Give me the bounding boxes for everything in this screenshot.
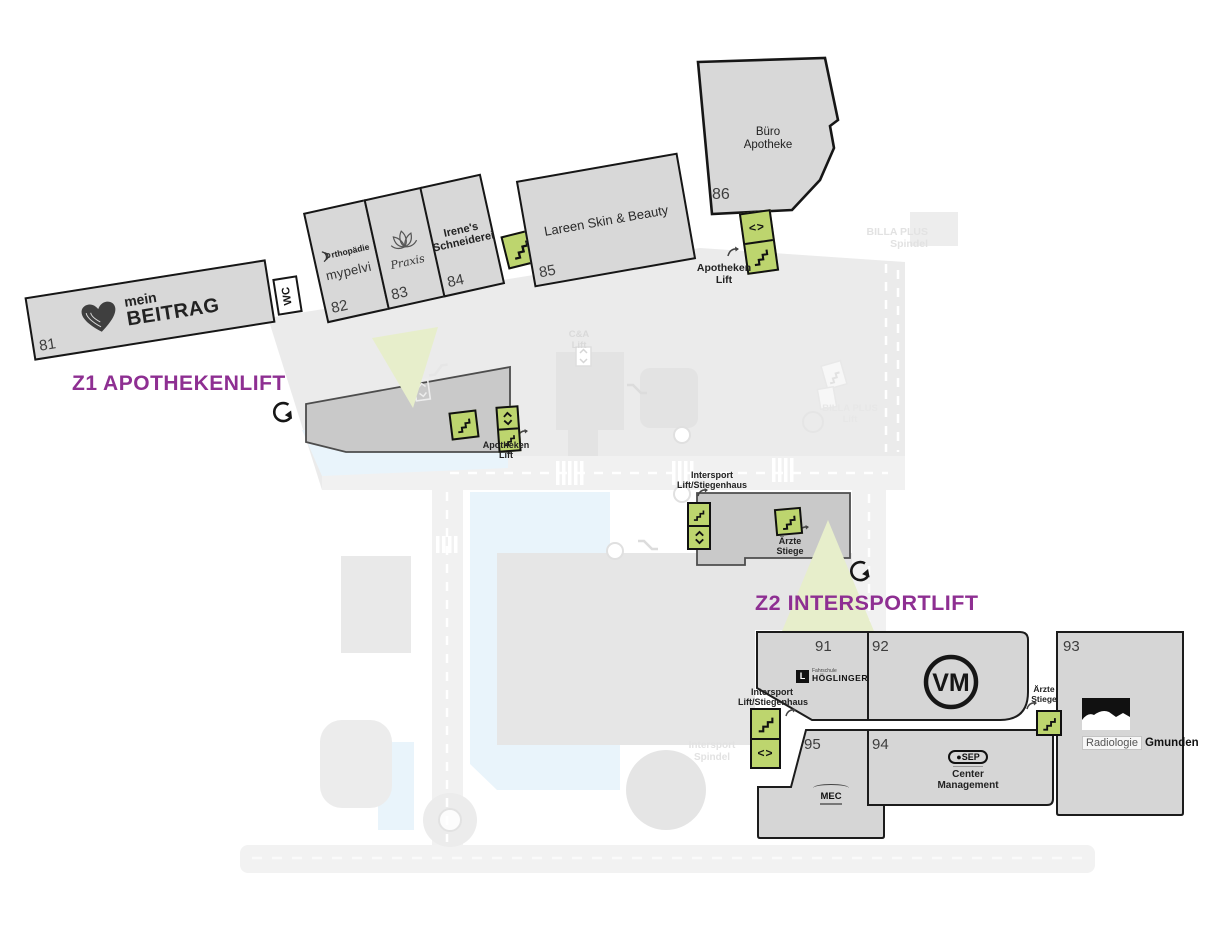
apotheken-lift-mid-label: Apotheken Lift	[478, 440, 534, 461]
label-line: Lift	[694, 274, 754, 286]
unit-number: 92	[872, 638, 889, 655]
aerzte-stiege-right-label: Ärzte Stiege	[1024, 685, 1064, 705]
aerzte-stiege-mid-icon	[774, 507, 803, 536]
label-line: Center	[937, 769, 998, 781]
label-line: Intersport	[682, 740, 742, 752]
label-line: BILLA PLUS	[852, 226, 928, 238]
label-line: Management	[937, 780, 998, 792]
label-line: Lift/Stiegenhaus	[674, 480, 750, 490]
intersport-bottom-lift-icon: <>	[750, 708, 781, 769]
shop-name: Büro	[736, 126, 800, 139]
z2-title: Z2 INTERSPORTLIFT	[755, 591, 979, 616]
stairs-icon	[448, 409, 479, 440]
vm-monogram: VM	[932, 669, 970, 697]
label-line: Intersport	[674, 470, 750, 480]
mec-rule	[820, 803, 842, 805]
hoeglinger-logo: L Fahrschule HÖGLINGER	[796, 669, 868, 683]
mec-logo: MEC	[806, 784, 856, 805]
sep-logo-rule	[953, 766, 983, 768]
label-line: Spindel	[682, 752, 742, 764]
brand-text: rthopädie	[330, 241, 370, 259]
unit-number: 91	[815, 638, 832, 655]
label-line: Apotheken	[694, 262, 754, 274]
billa-plus-lift-label: BILLA PLUS Lift	[822, 404, 878, 426]
brand-text: SEP	[962, 752, 980, 762]
vm-logo: VM	[922, 653, 980, 711]
brand-text: HÖGLINGER	[812, 674, 868, 683]
road-bottom	[240, 845, 1095, 873]
mall-floorplan-map: { "titles": { "z1": "Z1 APOTHEKENLIFT", …	[0, 0, 1210, 929]
shop-name: Lareen Skin & Beauty	[543, 202, 669, 239]
unit-number: 83	[390, 283, 410, 303]
aerzte-stiege-mid-label: Ärzte Stiege	[766, 536, 814, 557]
meinbeitrag-heart-icon	[79, 299, 120, 336]
intersport-lift-mid-label: Intersport Lift/Stiegenhaus	[674, 470, 750, 491]
map-base-layer	[0, 0, 1210, 929]
label-line: Apotheken	[478, 440, 534, 450]
lotus-icon	[386, 226, 420, 256]
mountain-icon	[1082, 698, 1130, 730]
escalator-icon	[638, 541, 658, 549]
label-line: Lift	[822, 415, 878, 426]
unit-number: 84	[446, 271, 466, 291]
unit-number: 86	[712, 186, 730, 204]
label-line: Stiege	[1024, 695, 1064, 705]
unit-number: 81	[38, 335, 57, 354]
sep-center-management: ●SEP Center Management	[938, 750, 998, 792]
brand-text: MEC	[820, 792, 841, 802]
lift-icon	[689, 525, 709, 548]
ca-lift-label: C&A Lift	[560, 330, 598, 352]
driving-school-l-icon: L	[796, 670, 809, 683]
brand-text: Gmunden	[1145, 737, 1199, 749]
label-line: Lift/Stiegenhaus	[738, 697, 806, 707]
brand-text: mypelvi	[324, 258, 372, 283]
unit-number: 82	[330, 297, 350, 317]
billa-plus-spindel-label: BILLA PLUS Spindel	[852, 226, 928, 250]
left-blob	[320, 720, 392, 808]
intersport-spindel-label: Intersport Spindel	[682, 740, 742, 763]
z1-rotation-arrow	[272, 401, 295, 423]
label-line: Lift	[478, 450, 534, 460]
lift-icon	[498, 407, 518, 428]
left-block	[341, 556, 411, 653]
unit-number: 93	[1063, 638, 1080, 655]
radiologie-logo: Radiologie Gmunden	[1082, 698, 1182, 750]
unit-number: 85	[538, 262, 557, 282]
lift-icon: <>	[741, 211, 773, 243]
wc-label: WC	[280, 286, 295, 306]
lift-icon: <>	[752, 738, 779, 768]
unit-number: 95	[804, 736, 821, 753]
label-line: Ärzte	[766, 536, 814, 546]
intersport-mid-lift-icon	[687, 502, 711, 550]
sep-logo: ●SEP	[948, 750, 987, 764]
unit-86-name: Büro Apotheke	[736, 126, 800, 152]
stairs-icon	[689, 504, 709, 525]
unit-number: 94	[872, 736, 889, 753]
stairs-icon	[752, 710, 779, 738]
aerzte-stiege-right-icon	[1036, 710, 1062, 736]
apotheken-lift-label: Apotheken Lift	[694, 262, 754, 286]
label-line: Lift	[560, 341, 598, 352]
z1-title: Z1 APOTHEKENLIFT	[72, 372, 286, 396]
label-line: Stiege	[766, 546, 814, 556]
plaza-blob	[640, 368, 698, 428]
label-line: Spindel	[852, 238, 928, 250]
intersport-lift-bottom-label: Intersport Lift/Stiegenhaus	[738, 687, 806, 708]
roundabout-center	[439, 809, 461, 831]
meinbeitrag-logo: mein BEITRAG	[123, 282, 221, 332]
shop-name: Apotheke	[736, 139, 800, 152]
brand-text: Radiologie	[1082, 736, 1142, 750]
label-line: Intersport	[738, 687, 806, 697]
